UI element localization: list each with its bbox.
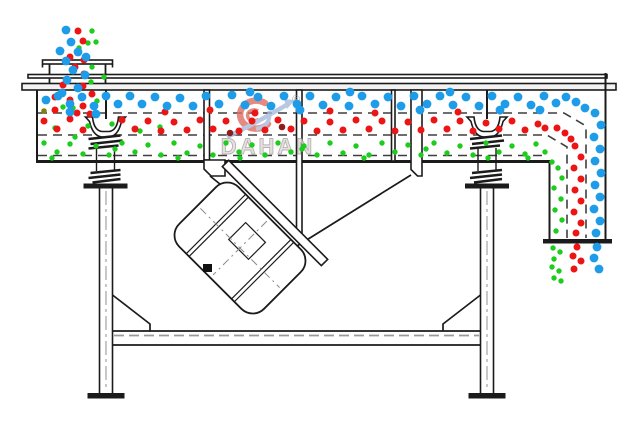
green-particle: [275, 140, 280, 145]
blue-particle: [475, 102, 484, 111]
red-particle: [252, 110, 259, 117]
green-particle: [175, 155, 180, 160]
blue-particle: [514, 93, 523, 102]
green-particle: [54, 149, 59, 154]
green-particle: [555, 165, 560, 170]
red-particle: [535, 121, 542, 128]
blue-particle: [66, 100, 75, 109]
dark_red-particle: [227, 130, 234, 137]
red-particle: [578, 220, 585, 227]
green-particle: [89, 28, 94, 33]
blue-particle: [591, 109, 600, 118]
green-particle: [184, 150, 189, 155]
red-particle: [262, 127, 269, 134]
blue-particle: [267, 102, 276, 111]
green-particle: [41, 140, 46, 145]
red-particle: [223, 118, 230, 125]
blue-particle: [306, 92, 315, 101]
green-particle: [288, 149, 293, 154]
support-leg-right: [469, 188, 506, 399]
particles-layer: [41, 26, 606, 284]
green-particle: [553, 228, 558, 233]
red-particle: [455, 109, 462, 116]
blue-particle: [163, 102, 172, 111]
green-particle: [353, 143, 358, 148]
gusset-right: [443, 295, 481, 331]
green-particle: [249, 142, 254, 147]
red-particle: [275, 117, 282, 124]
green-particle: [444, 150, 449, 155]
red-particle: [132, 126, 139, 133]
blue-particle: [572, 98, 581, 107]
green-particle: [423, 146, 428, 151]
blue-particle: [126, 92, 135, 101]
green-particle: [158, 152, 163, 157]
blue-particle: [74, 48, 83, 57]
blue-particle: [82, 53, 91, 62]
green-particle: [533, 141, 538, 146]
green-particle: [119, 140, 124, 145]
blue-particle: [590, 133, 599, 142]
red-particle: [578, 176, 585, 183]
green-particle: [559, 175, 564, 180]
blue-particle: [228, 91, 237, 100]
green-particle: [556, 268, 561, 273]
blue-particle: [416, 106, 425, 115]
blue-particle: [446, 88, 455, 97]
blue-particle: [56, 47, 65, 56]
dark_red-particle: [279, 124, 286, 131]
green-particle: [549, 159, 554, 164]
green-particle: [551, 275, 556, 280]
red-particle: [210, 126, 217, 133]
green-particle: [557, 249, 562, 254]
blue-particle: [254, 93, 263, 102]
green-particle: [551, 185, 556, 190]
blue-particle: [597, 169, 606, 178]
motor-bolt: [203, 264, 212, 272]
blue-particle: [591, 157, 600, 166]
blue-particle: [371, 100, 380, 109]
machine-line-art: [22, 60, 616, 399]
support-leg-left: [88, 188, 125, 399]
blue-particle: [66, 108, 75, 117]
red-particle: [571, 165, 578, 172]
red-particle: [340, 127, 347, 134]
green-particle: [549, 264, 554, 269]
green-particle: [237, 155, 242, 160]
base-beam: [113, 331, 481, 345]
blue-particle: [552, 99, 561, 108]
red-particle: [75, 28, 82, 35]
blue-particle: [176, 94, 185, 103]
green-particle: [418, 152, 423, 157]
blue-particle: [346, 88, 355, 97]
diagram-canvas: ® DAHAN: [0, 0, 638, 428]
red-particle: [301, 118, 308, 125]
green-particle: [262, 152, 267, 157]
red-particle: [568, 136, 575, 143]
red-particle: [578, 198, 585, 205]
red-particle: [509, 118, 516, 125]
green-particle: [431, 140, 436, 145]
blue-particle: [397, 102, 406, 111]
green-particle: [85, 123, 90, 128]
red-particle: [418, 127, 425, 134]
blue-particle: [596, 145, 605, 154]
red-particle: [327, 119, 334, 126]
blue-particle: [202, 92, 211, 101]
green-particle: [145, 142, 150, 147]
red-particle: [80, 127, 87, 134]
red-particle: [288, 126, 295, 133]
red-particle: [236, 128, 243, 135]
red-particle: [52, 107, 59, 114]
red-particle: [573, 230, 580, 237]
spring-assembly-left: [84, 117, 128, 189]
blue-particle: [92, 110, 101, 119]
blue-particle: [138, 100, 147, 109]
blue-particle: [436, 92, 445, 101]
red-particle: [119, 117, 126, 124]
green-particle: [223, 140, 228, 145]
green-particle: [552, 207, 557, 212]
red-particle: [171, 119, 178, 126]
blue-particle: [151, 93, 160, 102]
top-cover-plate: [28, 75, 607, 79]
red-particle: [67, 116, 74, 123]
red-particle: [554, 125, 561, 132]
red-particle: [74, 110, 81, 117]
blue-particle: [42, 96, 51, 105]
blue-particle: [358, 92, 367, 101]
green-particle: [340, 150, 345, 155]
green-particle: [551, 256, 556, 261]
green-particle: [89, 64, 94, 69]
blue-particle: [67, 38, 76, 47]
red-particle: [522, 127, 529, 134]
red-particle: [562, 130, 569, 137]
blue-particle: [592, 229, 601, 238]
blue-particle: [384, 93, 393, 102]
blue-particle: [597, 121, 606, 130]
green-particle: [470, 152, 475, 157]
blue-particle: [581, 104, 590, 113]
blue-particle: [215, 100, 224, 109]
green-particle: [80, 151, 85, 156]
red-particle: [542, 125, 549, 132]
blue-particle: [593, 243, 602, 252]
blue-particle: [69, 66, 78, 75]
discharge-flange: [543, 239, 612, 244]
red-particle: [366, 126, 373, 133]
red-particle: [353, 117, 360, 124]
green-particle: [392, 149, 397, 154]
red-particle: [392, 128, 399, 135]
green-particle: [109, 121, 114, 126]
red-particle: [578, 258, 585, 265]
blue-particle: [590, 254, 599, 263]
top-beam: [22, 84, 616, 91]
green-particle: [496, 149, 501, 154]
red-particle: [571, 266, 578, 273]
blue-particle: [540, 92, 549, 101]
green-particle: [88, 79, 93, 84]
inlet-flange: [43, 60, 113, 64]
green-particle: [72, 134, 77, 139]
blue-particle: [246, 88, 255, 97]
green-particle: [101, 74, 106, 79]
green-particle: [60, 104, 65, 109]
blue-particle: [449, 101, 458, 110]
blue-particle: [78, 93, 87, 102]
red-particle: [496, 126, 503, 133]
green-particle: [483, 140, 488, 145]
base-frame: [113, 295, 481, 345]
red-particle: [574, 244, 581, 251]
red-particle: [41, 118, 48, 125]
blue-particle: [488, 92, 497, 101]
red-particle: [54, 126, 61, 133]
red-particle: [483, 120, 490, 127]
green-particle: [299, 146, 304, 151]
blue-particle: [63, 76, 72, 85]
blue-particle: [90, 102, 99, 111]
blue-particle: [296, 106, 305, 115]
gusset-left: [113, 295, 151, 331]
green-particle: [542, 149, 547, 154]
olive-particle: [41, 108, 47, 114]
red-particle: [207, 107, 214, 114]
green-particle: [559, 217, 564, 222]
red-particle: [572, 187, 579, 194]
red-particle: [379, 118, 386, 125]
green-particle: [93, 39, 98, 44]
deck-post-1-tab: [204, 160, 225, 176]
red-particle: [80, 103, 87, 110]
green-particle: [132, 149, 137, 154]
green-particle: [197, 143, 202, 148]
red-particle: [457, 118, 464, 125]
green-particle: [49, 155, 54, 160]
red-particle: [444, 126, 451, 133]
red-particle: [572, 143, 579, 150]
green-particle: [106, 152, 111, 157]
red-particle: [327, 108, 334, 115]
blue-particle: [280, 92, 289, 101]
blue-particle: [462, 93, 471, 102]
blue-particle: [536, 106, 545, 115]
blue-particle: [410, 92, 419, 101]
red-particle: [184, 127, 191, 134]
top-cover-assembly: [22, 60, 616, 90]
blue-particle: [189, 102, 198, 111]
blue-particle: [595, 265, 604, 274]
blue-particle: [345, 102, 354, 111]
blue-particle: [332, 93, 341, 102]
blue-particle: [527, 101, 536, 110]
green-particle: [509, 143, 514, 148]
green-particle: [558, 278, 563, 283]
red-particle: [405, 119, 412, 126]
green-particle: [366, 152, 371, 157]
red-particle: [145, 118, 152, 125]
red-particle: [158, 128, 165, 135]
deck-post-1: [204, 90, 210, 160]
red-particle: [470, 128, 477, 135]
red-particle: [249, 118, 256, 125]
blue-particle: [319, 101, 328, 110]
blue-particle: [241, 101, 250, 110]
blue-particle: [114, 100, 123, 109]
blue-particle: [81, 71, 90, 80]
vibrating-screen-diagram: ® DAHAN: [0, 0, 638, 428]
red-particle: [570, 253, 577, 260]
blue-particle: [54, 92, 63, 101]
blue-particle: [62, 57, 71, 66]
green-particle: [327, 140, 332, 145]
blue-particle: [591, 181, 600, 190]
red-particle: [578, 154, 585, 161]
blue-particle: [590, 205, 599, 214]
blue-particle: [496, 106, 505, 115]
green-particle: [457, 143, 462, 148]
blue-particle: [423, 100, 432, 109]
red-particle: [197, 117, 204, 124]
green-particle: [236, 149, 241, 154]
green-particle: [550, 245, 555, 250]
red-particle: [431, 117, 438, 124]
green-particle: [171, 140, 176, 145]
blue-particle: [74, 84, 83, 93]
green-particle: [210, 152, 215, 157]
blue-particle: [62, 26, 71, 35]
blue-particle: [562, 93, 571, 102]
green-particle: [379, 140, 384, 145]
green-particle: [405, 142, 410, 147]
green-particle: [558, 196, 563, 201]
red-particle: [314, 128, 321, 135]
blue-particle: [102, 92, 111, 101]
green-particle: [485, 155, 490, 160]
green-particle: [112, 146, 117, 151]
green-particle: [361, 155, 366, 160]
red-particle: [80, 38, 87, 45]
green-particle: [525, 155, 530, 160]
red-particle: [89, 91, 96, 98]
blue-particle: [596, 193, 605, 202]
green-particle: [93, 143, 98, 148]
green-particle: [67, 141, 72, 146]
red-particle: [372, 110, 379, 117]
blue-particle: [596, 217, 605, 226]
red-particle: [571, 209, 578, 216]
green-particle: [314, 152, 319, 157]
